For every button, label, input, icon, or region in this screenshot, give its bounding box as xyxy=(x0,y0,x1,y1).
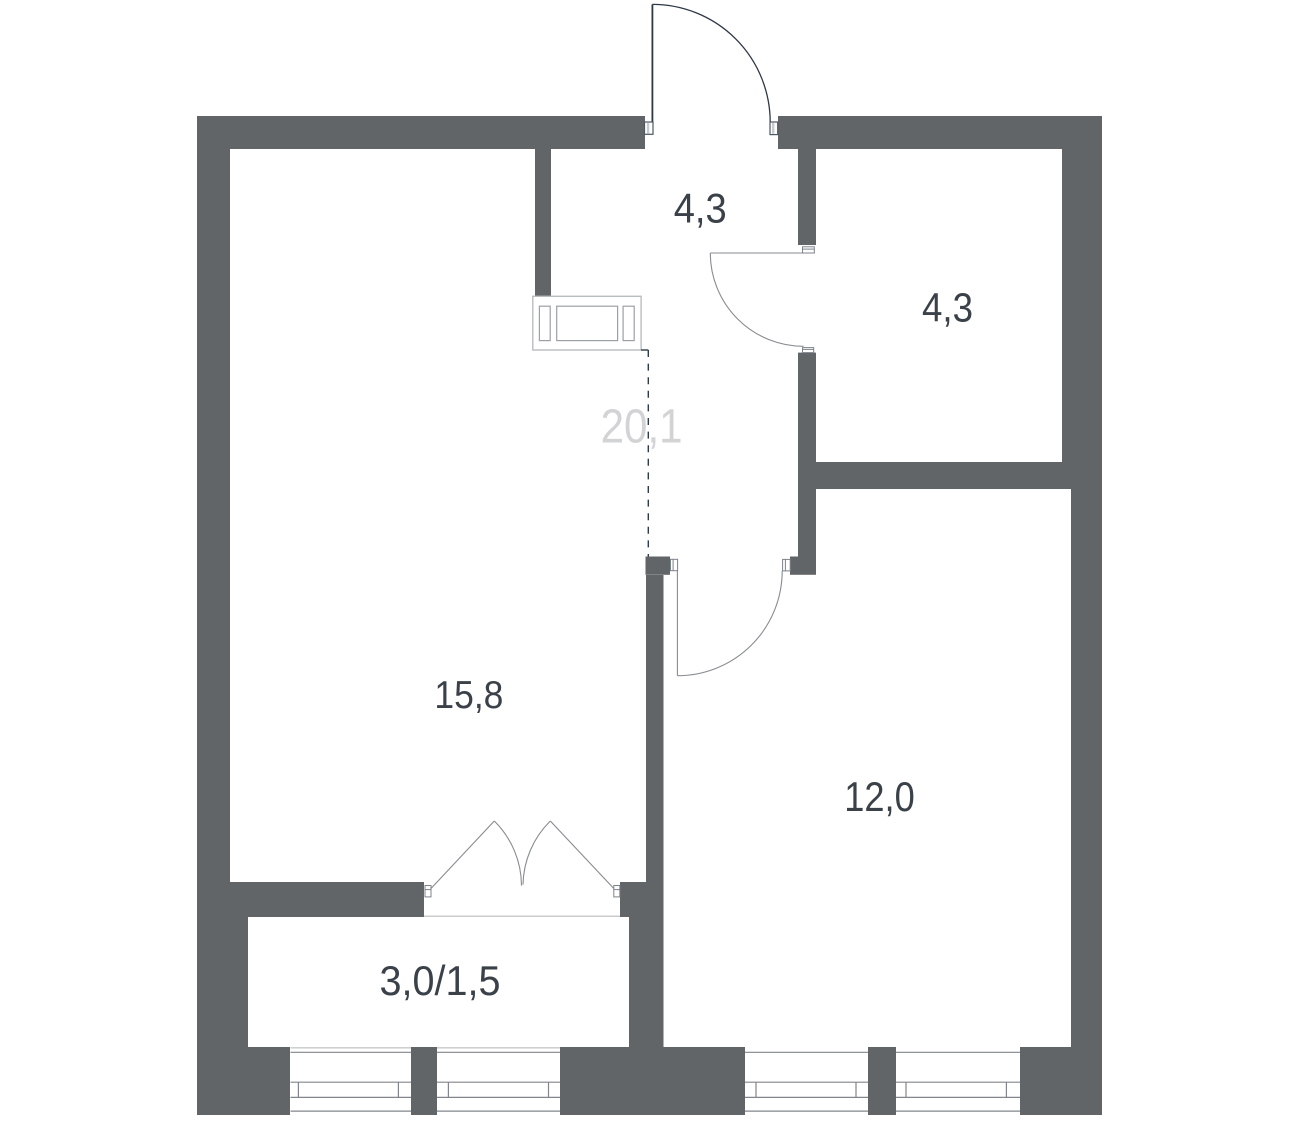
svg-text:12,0: 12,0 xyxy=(844,774,915,820)
svg-text:3,0/1,5: 3,0/1,5 xyxy=(380,957,501,1004)
svg-text:20,1: 20,1 xyxy=(601,400,683,454)
svg-text:15,8: 15,8 xyxy=(434,674,503,717)
svg-text:4,3: 4,3 xyxy=(922,284,973,330)
svg-text:4,3: 4,3 xyxy=(674,185,727,232)
